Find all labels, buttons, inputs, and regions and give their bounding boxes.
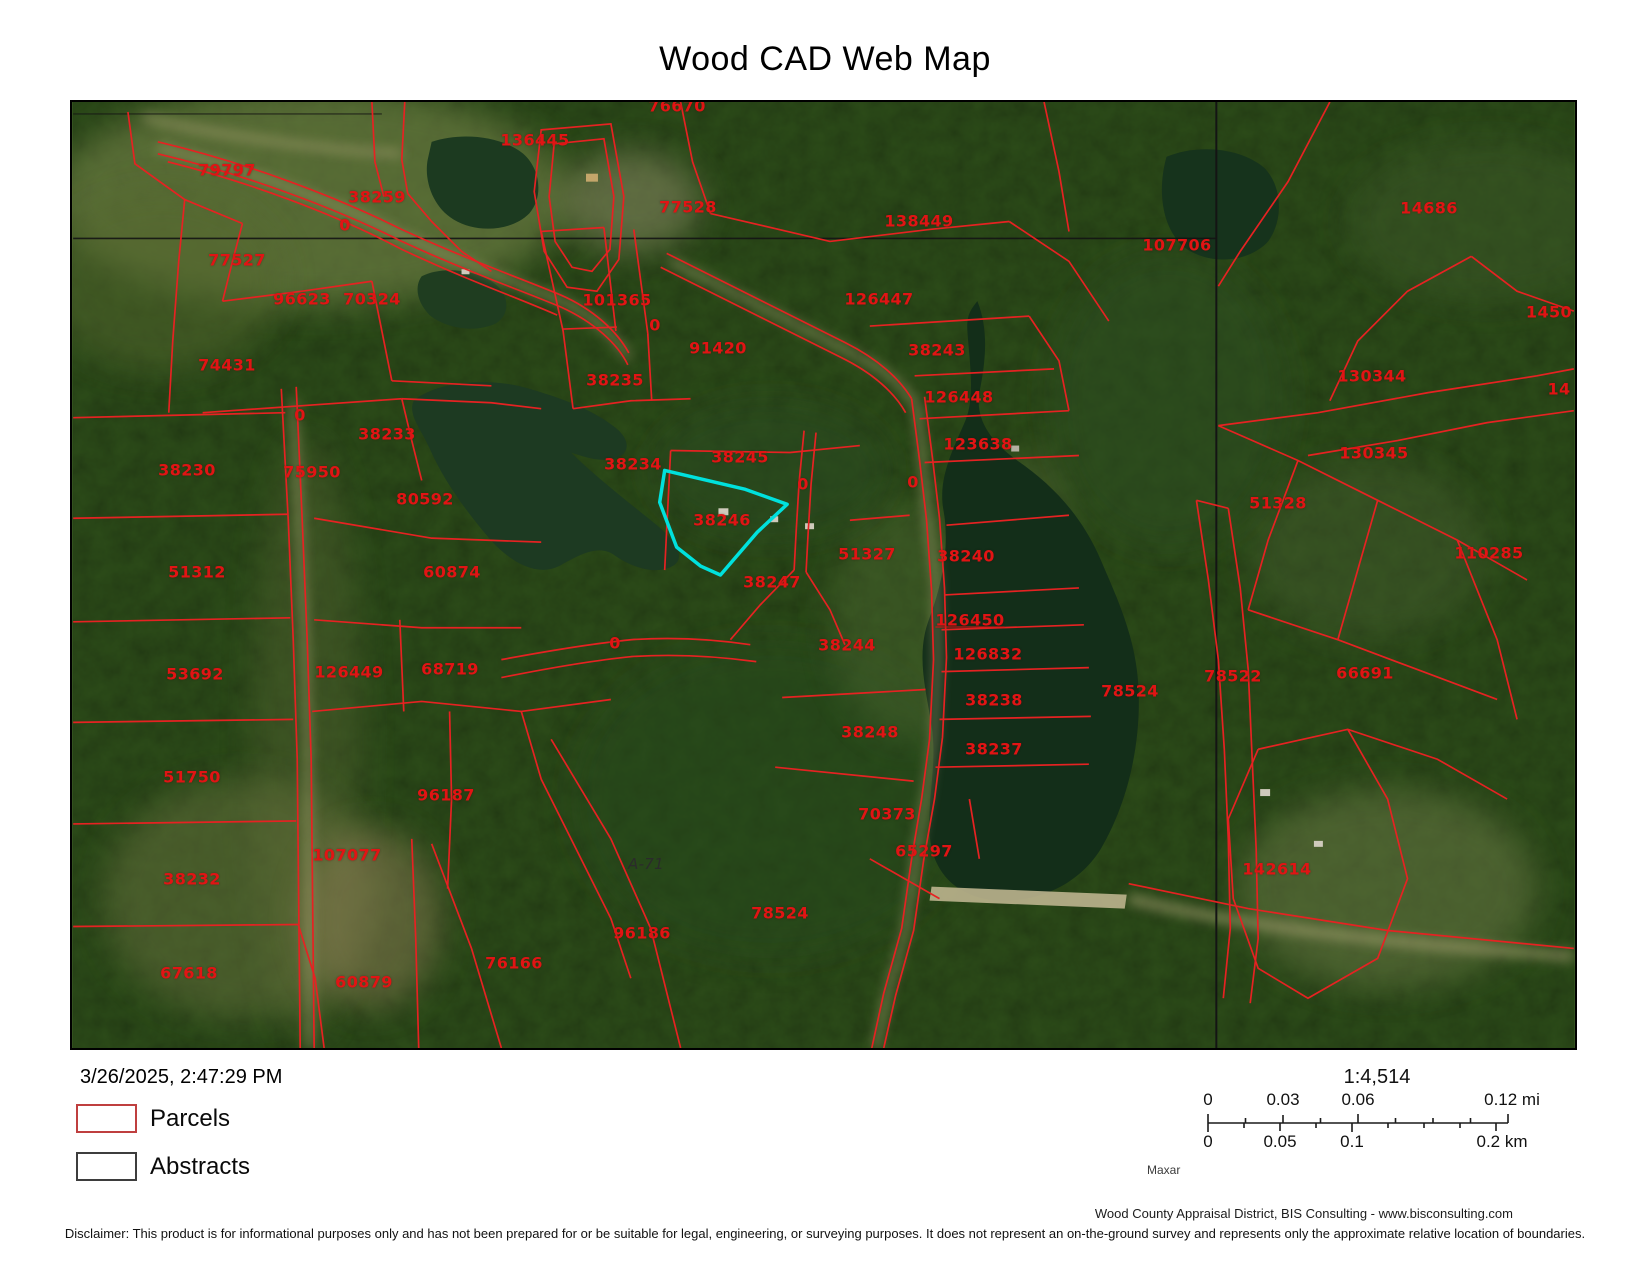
parcel-label: 51750 xyxy=(163,768,221,787)
imagery-credit: Maxar xyxy=(1147,1163,1180,1177)
scale-km-tick-label: 0 xyxy=(1203,1132,1212,1152)
scale-km-tick-label: 0.05 xyxy=(1263,1132,1296,1152)
parcel-label: 0 xyxy=(907,473,919,492)
parcel-label: 80592 xyxy=(396,490,454,509)
parcel-label: 14 xyxy=(1547,380,1570,399)
parcel-label: 38230 xyxy=(158,461,216,480)
parcel-label: 60874 xyxy=(423,563,481,582)
parcel-label: 123638 xyxy=(943,435,1012,454)
parcel-label: 60879 xyxy=(335,973,393,992)
parcel-label: 0 xyxy=(797,475,809,494)
parcel-label: 76166 xyxy=(485,954,543,973)
parcel-label: 126832 xyxy=(953,645,1022,664)
parcel-label: 70324 xyxy=(343,290,401,309)
parcel-label: 110285 xyxy=(1454,544,1523,563)
disclaimer: Disclaimer: This product is for informat… xyxy=(0,1226,1650,1241)
scale-km-tick-label: 0.2 km xyxy=(1476,1132,1527,1152)
parcel-label: 68719 xyxy=(421,660,479,679)
legend-parcels-swatch xyxy=(76,1104,137,1133)
parcel-label: 38237 xyxy=(965,740,1023,759)
parcel-labels-layer: 1364457667079797382590775281384491077061… xyxy=(72,102,1575,1048)
parcel-label: 78524 xyxy=(751,904,809,923)
scale-mi-tick-label: 0.06 xyxy=(1341,1090,1374,1110)
parcel-label: 38233 xyxy=(358,425,416,444)
parcel-label: 78522 xyxy=(1204,667,1262,686)
page-title: Wood CAD Web Map xyxy=(0,40,1650,79)
parcel-label: 76670 xyxy=(648,100,706,116)
parcel-label: 51327 xyxy=(838,545,896,564)
scale-km-tick-label: 0.1 xyxy=(1340,1132,1364,1152)
export-timestamp: 3/26/2025, 2:47:29 PM xyxy=(80,1066,282,1089)
legend-abstracts-swatch xyxy=(76,1152,137,1181)
parcel-label: 126448 xyxy=(924,388,993,407)
parcel-label: 38240 xyxy=(937,547,995,566)
parcel-label: 79797 xyxy=(198,161,256,180)
parcel-label: 126449 xyxy=(314,663,383,682)
parcel-label: 0 xyxy=(339,216,351,235)
parcel-label: 38238 xyxy=(965,691,1023,710)
parcel-label: 77527 xyxy=(208,251,266,270)
parcel-label: 0 xyxy=(294,406,306,425)
parcel-label: 1450 xyxy=(1526,303,1572,322)
parcel-label: 38243 xyxy=(908,341,966,360)
parcel-label: 53692 xyxy=(166,665,224,684)
parcel-label: 101365 xyxy=(582,291,651,310)
parcel-label: 51328 xyxy=(1249,494,1307,513)
parcel-label: 0 xyxy=(649,316,661,335)
parcel-label: 38244 xyxy=(818,636,876,655)
parcel-label: 138449 xyxy=(884,212,953,231)
parcel-label: 75950 xyxy=(283,463,341,482)
parcel-label: 51312 xyxy=(168,563,226,582)
parcel-label: 38235 xyxy=(586,371,644,390)
scale-mi-tick-label: 0.12 mi xyxy=(1484,1090,1540,1110)
parcel-label: 130345 xyxy=(1339,444,1408,463)
parcel-label: 130344 xyxy=(1337,367,1406,386)
parcel-label: 38246 xyxy=(693,511,751,530)
scale-mi-tick-label: 0 xyxy=(1203,1090,1212,1110)
parcel-label: 38259 xyxy=(348,188,406,207)
legend-abstracts-label: Abstracts xyxy=(150,1153,250,1181)
parcel-label: 77528 xyxy=(659,198,717,217)
abstract-label: A-71 xyxy=(628,855,664,873)
parcel-label: 107706 xyxy=(1142,236,1211,255)
map-canvas: 1364457667079797382590775281384491077061… xyxy=(70,100,1577,1050)
legend-parcels-label: Parcels xyxy=(150,1105,230,1133)
scale-mi-tick-label: 0.03 xyxy=(1266,1090,1299,1110)
parcel-label: 38234 xyxy=(604,455,662,474)
parcel-label: 96623 xyxy=(273,290,331,309)
parcel-label: 126447 xyxy=(844,290,913,309)
parcel-label: 14686 xyxy=(1400,199,1458,218)
wood-cad-map-export: { "title": "Wood CAD Web Map", "map": { … xyxy=(0,0,1650,1275)
parcel-label: 70373 xyxy=(858,805,916,824)
parcel-label: 38247 xyxy=(743,573,801,592)
parcel-label: 96187 xyxy=(417,786,475,805)
parcel-label: 38245 xyxy=(711,448,769,467)
parcel-label: 38232 xyxy=(163,870,221,889)
parcel-label: 96186 xyxy=(613,924,671,943)
parcel-label: 107077 xyxy=(312,846,381,865)
parcel-label: 126450 xyxy=(935,611,1004,630)
parcel-label: 74431 xyxy=(198,356,256,375)
parcel-label: 142614 xyxy=(1242,860,1311,879)
parcel-label: 91420 xyxy=(689,339,747,358)
parcel-label: 38248 xyxy=(841,723,899,742)
parcel-label: 67618 xyxy=(160,964,218,983)
parcel-label: 65297 xyxy=(895,842,953,861)
parcel-label: 136445 xyxy=(500,131,569,150)
parcel-label: 0 xyxy=(609,634,621,653)
parcel-label: 78524 xyxy=(1101,682,1159,701)
scale-ratio: 1:4,514 xyxy=(1307,1066,1447,1089)
parcel-label: 66691 xyxy=(1336,664,1394,683)
attribution: Wood County Appraisal District, BIS Cons… xyxy=(1095,1206,1513,1221)
